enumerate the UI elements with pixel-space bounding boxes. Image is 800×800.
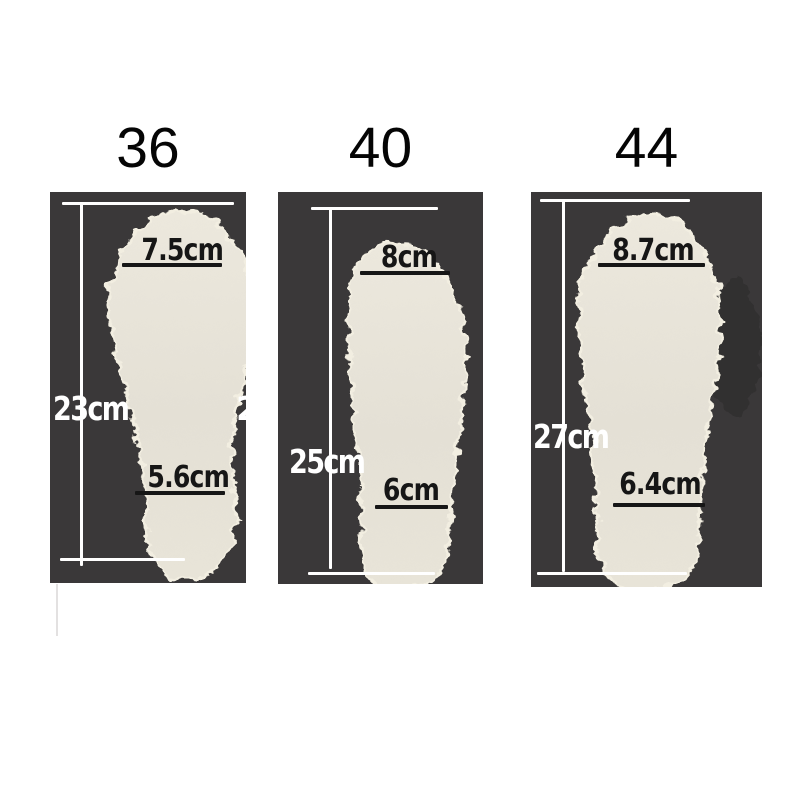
- toe-width-label: 8cm: [375, 243, 442, 273]
- heel-width-label: 5.6cm: [147, 463, 214, 493]
- size-label-44: 44: [531, 120, 762, 180]
- crop-artifact-line: [56, 584, 58, 636]
- measure-line-bottom: [60, 558, 185, 561]
- measure-line-bottom: [537, 572, 687, 575]
- heel-width-label: 6.4cm: [619, 470, 695, 500]
- measure-line-vertical: [562, 199, 565, 572]
- heel-width-rule: [613, 503, 705, 507]
- measure-line-bottom: [308, 572, 435, 575]
- toe-width-label: 8.7cm: [612, 236, 688, 266]
- length-label: 27cm: [533, 420, 608, 453]
- length-label: 23cm: [53, 392, 128, 425]
- size-label-36: 36: [50, 120, 246, 180]
- cropped-glyph: 2: [236, 392, 246, 425]
- toe-width-rule: [598, 263, 705, 267]
- toe-width-rule: [122, 263, 222, 267]
- panel-size-40: 25cm 8cm 6cm: [278, 192, 483, 584]
- measure-line-vertical: [329, 207, 332, 569]
- measure-line-vertical: [80, 202, 83, 566]
- toe-width-label: 7.5cm: [141, 236, 208, 266]
- measure-line-top: [62, 202, 234, 205]
- size-chart: 36 40 44 23cm 7.5cm 5.6cm 2 25cm 8cm 6cm: [0, 0, 800, 800]
- heel-width-label: 6cm: [377, 476, 444, 506]
- length-label: 25cm: [289, 445, 364, 478]
- panel-size-44: 27cm 8.7cm 6.4cm: [531, 192, 762, 587]
- heel-width-rule: [375, 505, 448, 509]
- toe-width-rule: [360, 271, 450, 275]
- size-label-40: 40: [278, 120, 483, 180]
- panel-size-36: 23cm 7.5cm 5.6cm 2: [50, 192, 246, 583]
- heel-width-rule: [135, 491, 225, 495]
